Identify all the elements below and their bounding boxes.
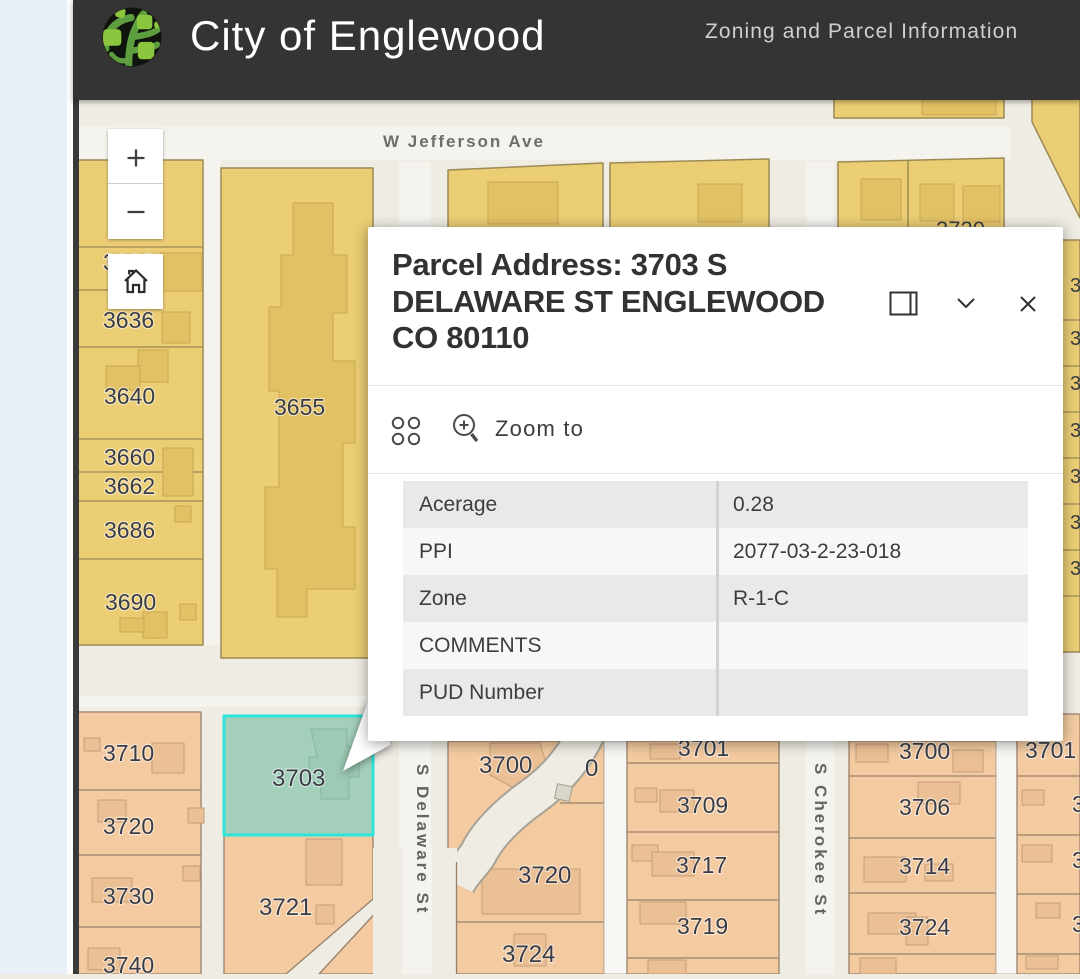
svg-text:3636: 3636 <box>103 307 154 333</box>
svg-text:3724: 3724 <box>502 941 555 968</box>
svg-text:36: 36 <box>1070 328 1080 350</box>
svg-text:36: 36 <box>1070 373 1080 395</box>
svg-text:36: 36 <box>1070 466 1080 488</box>
svg-text:36: 36 <box>1070 558 1080 580</box>
svg-text:3714: 3714 <box>899 853 950 879</box>
svg-text:37: 37 <box>1072 911 1080 937</box>
svg-text:0: 0 <box>585 755 598 782</box>
svg-text:W Jefferson Ave: W Jefferson Ave <box>383 132 545 151</box>
svg-text:36: 36 <box>1070 275 1080 297</box>
svg-text:3720: 3720 <box>518 862 571 889</box>
svg-text:S Cherokee St: S Cherokee St <box>811 763 830 917</box>
svg-text:3700: 3700 <box>899 738 950 764</box>
svg-text:37: 37 <box>1072 791 1080 817</box>
svg-text:3686: 3686 <box>104 517 155 543</box>
svg-text:3710: 3710 <box>103 740 154 766</box>
svg-text:3703: 3703 <box>272 765 325 792</box>
svg-text:3700: 3700 <box>479 752 532 779</box>
svg-text:3740: 3740 <box>103 952 154 974</box>
svg-text:3640: 3640 <box>104 383 155 409</box>
svg-text:3730: 3730 <box>103 883 154 909</box>
svg-text:36: 36 <box>1070 420 1080 442</box>
svg-text:3660: 3660 <box>104 444 155 470</box>
svg-text:3721: 3721 <box>259 894 312 921</box>
svg-text:3690: 3690 <box>105 589 156 615</box>
svg-text:3717: 3717 <box>676 852 727 878</box>
svg-text:3719: 3719 <box>677 913 728 939</box>
svg-text:3724: 3724 <box>899 914 950 940</box>
svg-text:3720: 3720 <box>103 813 154 839</box>
svg-text:3709: 3709 <box>677 792 728 818</box>
svg-text:37: 37 <box>1072 847 1080 873</box>
svg-text:36: 36 <box>1070 512 1080 534</box>
svg-text:3655: 3655 <box>274 394 325 420</box>
svg-text:3706: 3706 <box>899 794 950 820</box>
svg-text:3662: 3662 <box>104 473 155 499</box>
